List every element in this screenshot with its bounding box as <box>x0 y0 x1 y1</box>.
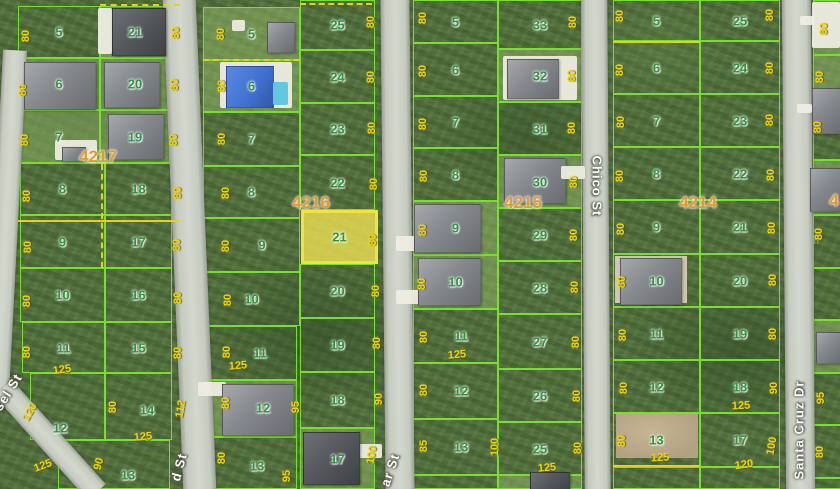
boundary-dashed-yellow <box>300 3 372 5</box>
lot-number-25: 25 <box>533 441 547 456</box>
dimension-label: 80 <box>764 114 776 126</box>
street-label-santa-cruz-dr: Santa Cruz Dr <box>792 381 807 480</box>
dimension-label: 80 <box>814 71 826 83</box>
lot-number-7: 7 <box>452 115 459 130</box>
lot-number-8: 8 <box>248 185 255 200</box>
lot-number-9: 9 <box>452 221 459 236</box>
lot-number-6: 6 <box>452 62 459 77</box>
dimension-label: 80 <box>614 170 626 182</box>
dimension-label: 80 <box>418 384 430 396</box>
lot-number-12: 12 <box>649 379 663 394</box>
block-number-label: 4214 <box>679 193 717 213</box>
dimension-label: 80 <box>172 347 184 359</box>
lot-number-18: 18 <box>131 182 145 197</box>
dimension-label: 80 <box>615 116 627 128</box>
lot-partial <box>413 475 498 489</box>
house-roof <box>530 472 570 489</box>
lot-number-19: 19 <box>330 338 344 353</box>
driveway <box>232 20 245 31</box>
dimension-label: 80 <box>614 10 626 22</box>
block-number-label: 4 <box>829 191 838 211</box>
lot-number-21: 21 <box>128 25 142 40</box>
lot-number-20: 20 <box>733 273 747 288</box>
dimension-label: 80 <box>417 65 429 77</box>
dimension-label: 80 <box>818 23 830 35</box>
dimension-label: 80 <box>615 223 627 235</box>
dimension-label: 80 <box>572 442 584 454</box>
dimension-label: 80 <box>370 285 382 297</box>
lot-number-5: 5 <box>248 26 255 41</box>
dimension-label: 125 <box>447 348 466 362</box>
block-number-label: 4217 <box>79 147 117 167</box>
lot-number-8: 8 <box>452 167 459 182</box>
dimension-label: 80 <box>220 397 232 409</box>
dimension-label: 80 <box>368 178 380 190</box>
dimension-label: 80 <box>812 121 824 133</box>
dimension-label: 80 <box>21 190 33 202</box>
dimension-label: 80 <box>366 122 378 134</box>
dimension-label: 125 <box>133 430 152 444</box>
lot-number-13: 13 <box>250 459 264 474</box>
lot-number-23: 23 <box>733 113 747 128</box>
lot-number-19: 19 <box>733 326 747 341</box>
dimension-label: 80 <box>169 79 181 91</box>
lot-number-17: 17 <box>733 433 747 448</box>
dimension-label: 95 <box>290 401 302 413</box>
dimension-label: 100 <box>489 438 501 456</box>
boundary-yellow <box>18 220 180 222</box>
lot-number-28: 28 <box>533 280 547 295</box>
lot-number-5: 5 <box>653 13 660 28</box>
lot-number-6: 6 <box>653 60 660 75</box>
lot-9 <box>203 218 300 272</box>
dimension-label: 80 <box>567 16 579 28</box>
dimension-label: 125 <box>732 400 751 413</box>
lot-number-7: 7 <box>248 132 255 147</box>
lot-number-5: 5 <box>55 25 62 40</box>
dimension-label: 80 <box>170 27 182 39</box>
lot-number-22: 22 <box>330 175 344 190</box>
dimension-label: 95 <box>815 392 827 404</box>
pool <box>273 82 288 105</box>
lot-number-9: 9 <box>258 238 265 253</box>
lot-number-10: 10 <box>55 288 69 303</box>
dimension-label: 125 <box>228 359 247 373</box>
dimension-label: 80 <box>171 239 183 251</box>
lot-number-25: 25 <box>733 13 747 28</box>
dimension-label: 95 <box>281 470 293 482</box>
lot-number-11: 11 <box>253 346 267 361</box>
dimension-label: 80 <box>568 176 580 188</box>
lot-number-27: 27 <box>533 334 547 349</box>
lot-number-15: 15 <box>131 340 145 355</box>
dimension-label: 125 <box>32 457 53 475</box>
boundary-yellow <box>613 465 700 467</box>
lot-number-23: 23 <box>330 122 344 137</box>
lot-number-31: 31 <box>533 121 547 136</box>
lot-number-21: 21 <box>332 230 346 245</box>
dimension-label: 80 <box>566 122 578 134</box>
lot-number-10: 10 <box>649 273 663 288</box>
lot-number-13: 13 <box>121 468 135 483</box>
lot-number-9: 9 <box>59 234 66 249</box>
dimension-label: 120 <box>734 458 754 472</box>
street-label-chico-st: Chico St <box>590 156 605 217</box>
dimension-label: 80 <box>418 331 430 343</box>
driveway <box>797 104 812 113</box>
dimension-label: 80 <box>764 62 776 74</box>
lot-partial <box>813 268 840 320</box>
house-roof <box>816 332 840 364</box>
dimension-label: 80 <box>365 71 377 83</box>
lot-number-5: 5 <box>452 14 459 29</box>
lot-number-18: 18 <box>330 393 344 408</box>
house-roof <box>267 22 295 53</box>
dimension-label: 80 <box>614 64 626 76</box>
lot-number-17: 17 <box>330 451 344 466</box>
dimension-label: 80 <box>22 241 34 253</box>
dimension-label: 80 <box>569 281 581 293</box>
dimension-label: 80 <box>416 278 428 290</box>
dimension-label: 125 <box>537 461 556 475</box>
lot-number-14: 14 <box>140 403 154 418</box>
lot-number-32: 32 <box>533 68 547 83</box>
dimension-label: 80 <box>616 276 628 288</box>
dimension-label: 80 <box>570 336 582 348</box>
dimension-label: 80 <box>19 134 31 146</box>
map-canvas[interactable]: Stellar 80808080808080808080808080801251… <box>0 0 840 489</box>
dimension-label: 80 <box>616 435 628 447</box>
lot-number-24: 24 <box>733 60 747 75</box>
lot-number-7: 7 <box>653 113 660 128</box>
dimension-label: 80 <box>417 224 429 236</box>
dimension-label: 80 <box>371 337 383 349</box>
dimension-label: 80 <box>168 134 180 146</box>
dimension-label: 80 <box>766 222 778 234</box>
lot-number-12: 12 <box>454 384 468 399</box>
lot-number-18: 18 <box>733 379 747 394</box>
lot-number-6: 6 <box>248 79 255 94</box>
dimension-label: 80 <box>566 70 578 82</box>
lot-number-26: 26 <box>533 388 547 403</box>
dimension-label: 80 <box>767 328 779 340</box>
dimension-label: 90 <box>373 393 385 405</box>
lot-number-13: 13 <box>454 440 468 455</box>
boundary-dashed-yellow <box>203 59 300 61</box>
dimension-label: 80 <box>568 229 580 241</box>
lot-number-30: 30 <box>533 174 547 189</box>
lot-number-10: 10 <box>448 275 462 290</box>
dimension-label: 80 <box>215 28 227 40</box>
road <box>581 0 611 489</box>
dimension-label: 80 <box>617 329 629 341</box>
dimension-label: 125 <box>52 363 72 377</box>
dimension-label: 100 <box>364 445 379 465</box>
lot-number-12: 12 <box>53 421 67 436</box>
lot-number-24: 24 <box>330 69 344 84</box>
lot-number-21: 21 <box>733 220 747 235</box>
lot-number-11: 11 <box>650 326 664 341</box>
dimension-label: 80 <box>172 187 184 199</box>
dimension-label: 80 <box>220 240 232 252</box>
dimension-label: 80 <box>221 346 233 358</box>
driveway <box>98 8 112 54</box>
lot-number-20: 20 <box>330 284 344 299</box>
dimension-label: 80 <box>216 80 228 92</box>
lot-number-25: 25 <box>330 18 344 33</box>
dimension-label: 80 <box>618 382 630 394</box>
block-number-label: 4215 <box>504 193 542 213</box>
lot-partial <box>613 467 700 489</box>
lot-number-11: 11 <box>454 329 468 344</box>
dimension-label: 80 <box>21 346 33 358</box>
lot-number-13: 13 <box>649 433 663 448</box>
lot-number-33: 33 <box>533 17 547 32</box>
lot-number-8: 8 <box>653 166 660 181</box>
dimension-label: 80 <box>418 170 430 182</box>
dimension-label: 80 <box>216 133 228 145</box>
dimension-label: 80 <box>417 118 429 130</box>
block-number-label: 4216 <box>292 193 330 213</box>
dimension-label: 85 <box>418 440 430 452</box>
dimension-label: 80 <box>107 401 119 413</box>
dimension-label: 80 <box>21 295 33 307</box>
dimension-label: 80 <box>813 228 825 240</box>
lot-number-7: 7 <box>55 129 62 144</box>
lot-number-9: 9 <box>653 220 660 235</box>
lot-number-19: 19 <box>128 129 142 144</box>
lot-number-20: 20 <box>128 77 142 92</box>
dimension-label: 90 <box>768 382 780 394</box>
dimension-label: 80 <box>222 294 234 306</box>
dimension-label: 80 <box>367 234 379 246</box>
boundary-dashed-yellow <box>101 164 103 268</box>
lot-number-8: 8 <box>59 182 66 197</box>
lot-number-17: 17 <box>131 234 145 249</box>
dimension-label: 125 <box>651 452 670 465</box>
lot-number-22: 22 <box>733 166 747 181</box>
lot-partial <box>813 478 840 489</box>
dimension-label: 80 <box>216 452 228 464</box>
boundary-yellow <box>613 41 700 43</box>
dimension-label: 80 <box>764 9 776 21</box>
lot-number-16: 16 <box>131 288 145 303</box>
dimension-label: 80 <box>17 84 29 96</box>
dimension-label: 80 <box>767 274 779 286</box>
dimension-label: 80 <box>814 446 826 458</box>
dimension-label: 80 <box>571 390 583 402</box>
lot-number-10: 10 <box>244 292 258 307</box>
lot-11 <box>200 326 297 380</box>
dimension-label: 80 <box>365 16 377 28</box>
lot-partial <box>813 215 840 268</box>
dimension-label: 80 <box>417 12 429 24</box>
boundary-dashed-yellow <box>100 4 180 6</box>
lot-number-29: 29 <box>533 227 547 242</box>
dimension-label: 80 <box>20 30 32 42</box>
dimension-label: 80 <box>220 187 232 199</box>
lot-number-11: 11 <box>57 340 71 355</box>
lot-number-6: 6 <box>55 77 62 92</box>
lot-number-12: 12 <box>256 401 270 416</box>
dimension-label: 80 <box>765 169 777 181</box>
dimension-label: 80 <box>172 292 184 304</box>
